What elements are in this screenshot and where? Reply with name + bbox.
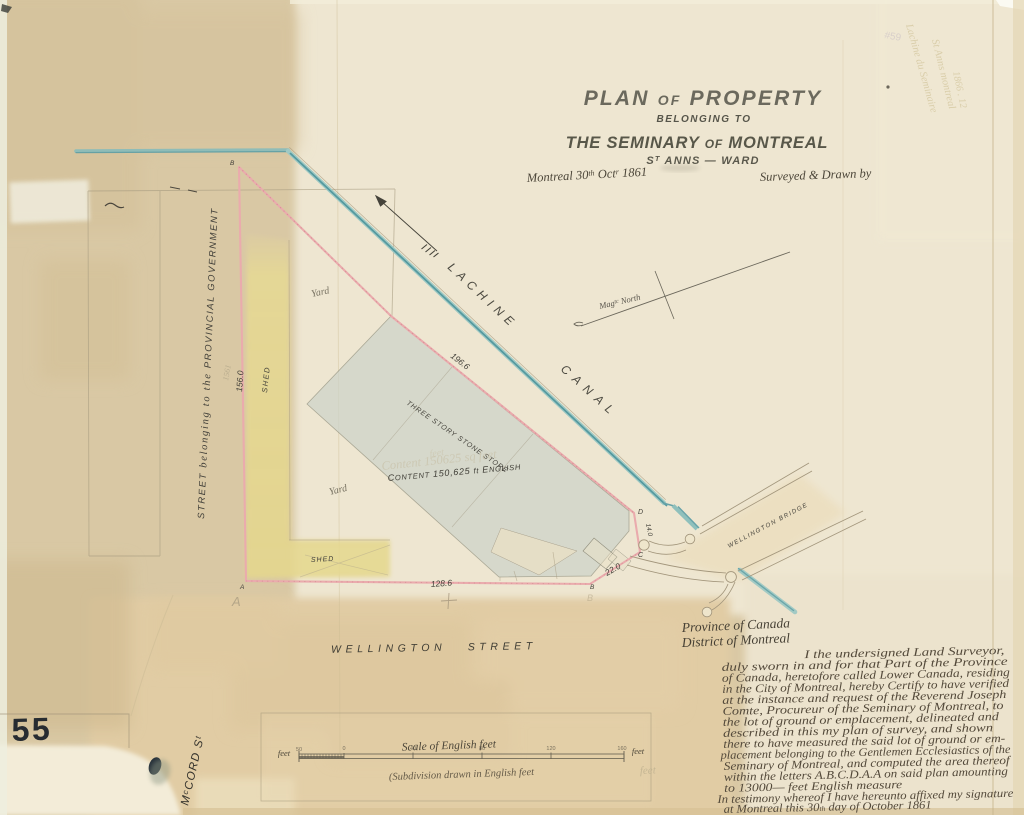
svg-text:feet: feet bbox=[429, 447, 445, 460]
svg-text:B: B bbox=[587, 593, 593, 603]
svg-text:120: 120 bbox=[546, 746, 555, 752]
svg-text:0: 0 bbox=[342, 746, 345, 752]
svg-text:SHED: SHED bbox=[311, 556, 335, 564]
svg-text:ST ANNS — WARD: ST ANNS — WARD bbox=[646, 154, 759, 167]
svg-text:50: 50 bbox=[296, 747, 302, 753]
svg-text:80: 80 bbox=[479, 746, 485, 752]
svg-text:B: B bbox=[590, 584, 595, 591]
svg-text:feet: feet bbox=[632, 746, 645, 756]
svg-text:A: A bbox=[231, 594, 241, 609]
svg-text:B: B bbox=[230, 160, 235, 167]
svg-text:PLAN OF PROPERTY: PLAN OF PROPERTY bbox=[584, 87, 823, 110]
svg-text:55: 55 bbox=[11, 711, 53, 748]
svg-text:156.0: 156.0 bbox=[234, 370, 245, 392]
svg-text:40: 40 bbox=[410, 746, 416, 752]
svg-text:feet: feet bbox=[640, 764, 657, 777]
svg-text:A: A bbox=[239, 584, 244, 591]
svg-text:160: 160 bbox=[617, 746, 626, 752]
svg-text:BELONGING TO: BELONGING TO bbox=[656, 114, 751, 125]
svg-text:128.6: 128.6 bbox=[430, 578, 452, 589]
svg-text:THE SEMINARY OF MONTREAL: THE SEMINARY OF MONTREAL bbox=[566, 134, 829, 152]
svg-text:feet: feet bbox=[278, 748, 291, 758]
svg-text:D: D bbox=[638, 509, 643, 516]
